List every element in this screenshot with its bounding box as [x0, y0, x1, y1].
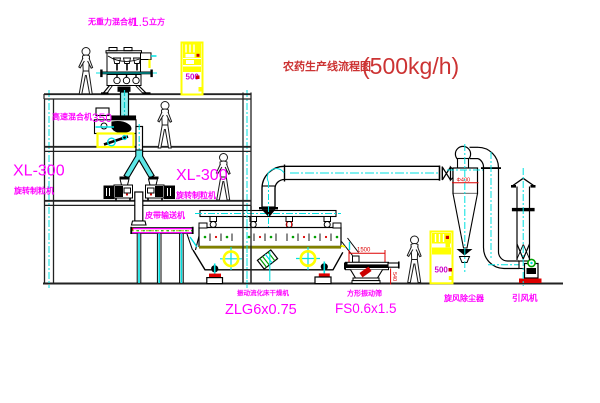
svg-text:皮带输送机: 皮带输送机	[144, 210, 185, 220]
svg-text:Φ400: Φ400	[457, 178, 471, 184]
svg-text:1.5: 1.5	[132, 15, 149, 29]
svg-text:500: 500	[435, 266, 449, 275]
svg-text:无重力混合机: 无重力混合机	[87, 17, 136, 27]
svg-text:XL-300: XL-300	[176, 167, 228, 184]
svg-text:振动流化床干燥机: 振动流化床干燥机	[237, 288, 290, 297]
svg-text:农药生产线流程图: 农药生产线流程图	[282, 59, 371, 73]
svg-text:350: 350	[92, 111, 112, 125]
svg-text:旋转制粒机: 旋转制粒机	[175, 190, 216, 200]
svg-text:FS0.6x1.5: FS0.6x1.5	[335, 301, 397, 316]
svg-text:ZLG6x0.75: ZLG6x0.75	[225, 302, 297, 318]
svg-text:方形振动筛: 方形振动筛	[347, 289, 382, 298]
svg-text:旋风除尘器: 旋风除尘器	[443, 293, 485, 303]
svg-text:1500: 1500	[357, 248, 371, 254]
svg-text:引风机: 引风机	[512, 293, 538, 303]
svg-text:XL-300: XL-300	[13, 163, 65, 180]
svg-text:高速混合机: 高速混合机	[52, 112, 92, 122]
svg-text:540: 540	[391, 272, 397, 281]
svg-text:立方: 立方	[149, 17, 165, 27]
svg-text:(500kg/h): (500kg/h)	[362, 53, 459, 79]
svg-text:旋转制粒机: 旋转制粒机	[13, 186, 54, 196]
